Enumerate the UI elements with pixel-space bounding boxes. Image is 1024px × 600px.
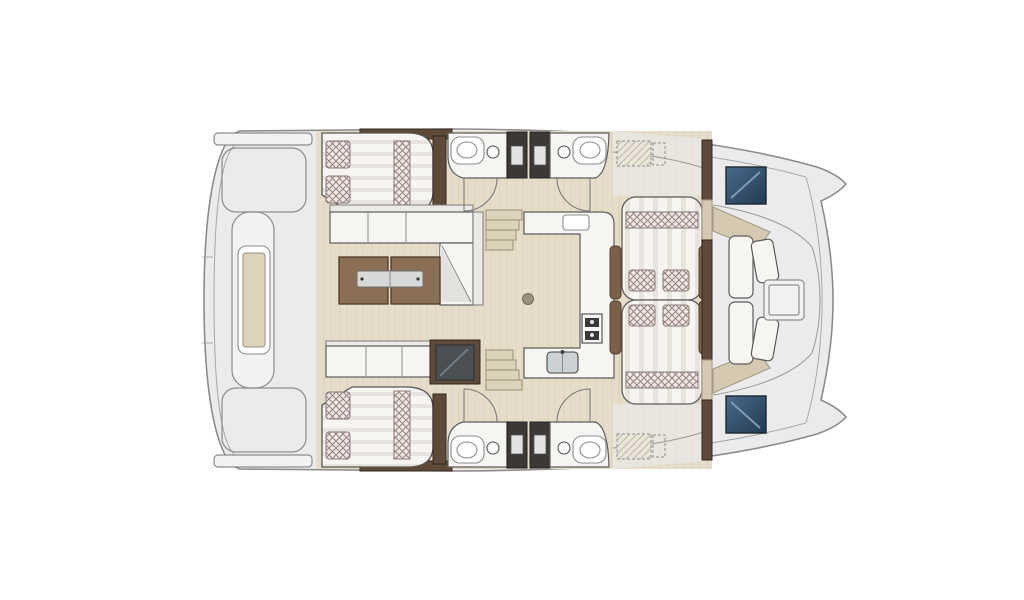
starboard-aft-cabin [322,387,452,471]
seat-bolster [626,212,698,228]
floor-hatch-ring [523,294,534,305]
chaise-backrest [473,212,483,305]
toilet-bowl [580,142,600,158]
pillow [326,176,350,203]
stair-step [486,210,522,220]
lounge-seat [729,302,753,364]
transom-bar-starboard [214,455,312,467]
bulkhead-segment [702,200,712,240]
hinge-screw [416,277,419,280]
washbasin [487,146,499,158]
helm-seat-hatched [617,141,651,166]
stair-step [486,230,516,240]
partition-panel [511,146,523,165]
faucet [561,350,565,354]
burner-ring [590,320,594,324]
bulkhead-segment [702,360,712,400]
stair-step [486,370,519,380]
bed-runner [394,141,410,209]
wardrobe [433,136,446,206]
toilet-bowl [457,442,477,458]
seat-cushion [663,270,689,291]
foredeck-table [764,280,804,320]
partition-panel [534,435,546,454]
counter-inset [563,215,589,230]
armrest [610,301,621,354]
forward-bulkhead [702,140,712,460]
salon-bench [326,346,437,377]
wardrobe [433,394,446,464]
stair-step [486,350,513,360]
stair-step [486,360,516,370]
seat-cushion [663,305,689,326]
partition-panel [534,146,546,165]
seat-cushion [629,305,655,326]
stair-step [486,220,519,230]
partition-panel [511,435,523,454]
burner-ring [590,333,594,337]
transom-bar-port [214,133,312,145]
sofa-bench [330,212,473,243]
washbasin [558,442,570,454]
hinge-screw [360,277,363,280]
dinghy-davit-tray [243,253,265,347]
armrest [610,246,621,299]
stair-step [486,380,522,390]
floor-plan-canvas [0,0,1024,600]
seat-cushion [629,270,655,291]
bulkhead-segment [702,240,712,360]
stair-step [486,240,513,250]
bed-runner [394,391,410,459]
catamaran-floor-plan [0,0,1024,600]
pillow [326,141,350,168]
bulkhead-segment [702,140,712,200]
washbasin [487,442,499,454]
port-aft-cabin [322,129,452,213]
lounge-seat [729,236,753,298]
toilet-bowl [457,142,477,158]
toilet-bowl [580,442,600,458]
helm-seat-hatched [617,434,651,459]
pillow [326,392,350,419]
pillow [326,432,350,459]
seat-bolster [626,372,698,388]
bulkhead-segment [702,400,712,460]
washbasin [558,146,570,158]
